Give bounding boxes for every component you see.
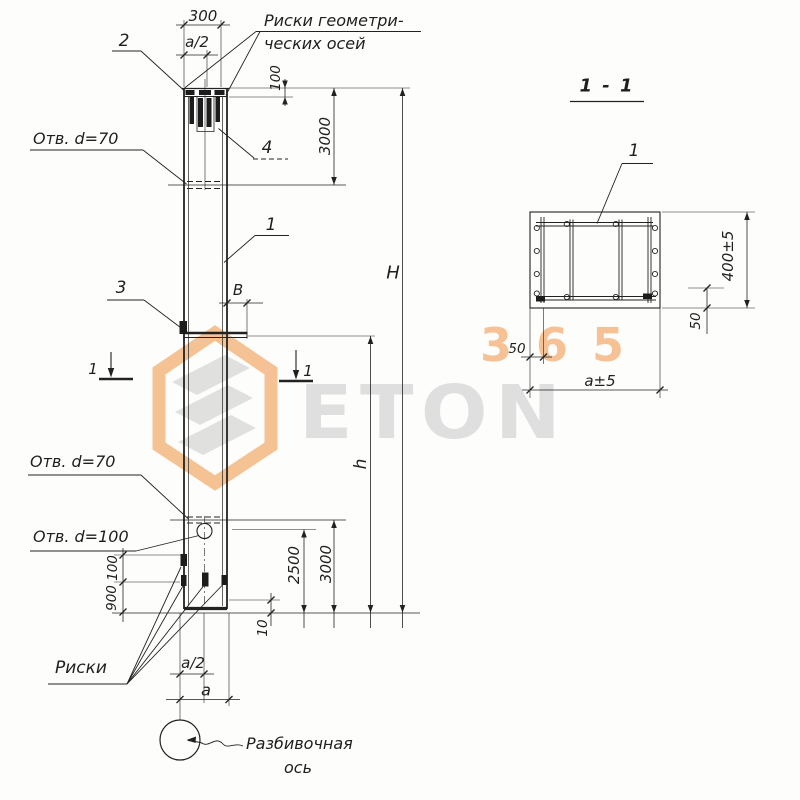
dim-50-right-label: 50 <box>688 312 704 329</box>
dim-B-label: В <box>233 281 243 299</box>
hole-bottom-label: Отв. d=100 <box>33 527 129 546</box>
dim-a2-bottom-label: a/2 <box>181 654 205 672</box>
dim-a-bottom-label: a <box>201 681 211 700</box>
dim-10-label: 10 <box>255 619 271 636</box>
pos-2-label: 2 <box>119 31 130 51</box>
hole-top-label: Отв. d=70 <box>33 129 118 148</box>
pos-1-label: 1 <box>266 215 277 235</box>
dim-300-label: 300 <box>189 7 218 25</box>
axis-marks-note-line2: ческих осей <box>264 34 366 53</box>
watermark-logo-icon <box>159 333 271 483</box>
riski-label: Риски <box>55 658 107 678</box>
dim-50-left-label: 50 <box>508 341 525 357</box>
dim-a5-label: a±5 <box>584 372 615 390</box>
pos-3-label: 3 <box>116 278 127 298</box>
drawing-linework <box>0 0 800 800</box>
dim-h-label: h <box>351 459 371 470</box>
axis-marks-note-line1: Риски геометри- <box>264 11 404 30</box>
dim-a2-top-label: a/2 <box>185 33 209 51</box>
dim-100-left-label: 100 <box>105 555 121 581</box>
section-pos-1-label: 1 <box>629 141 640 161</box>
setting-out-axis-label-line1: Разбивочная <box>246 734 353 753</box>
setting-out-axis-label-line2: ось <box>284 758 312 777</box>
dim-900-left-label: 900 <box>104 585 120 611</box>
dim-400-label: 400±5 <box>719 231 737 282</box>
dim-2500-label: 2500 <box>285 546 303 584</box>
cut-label-left: 1 <box>88 360 98 378</box>
engineering-drawing: 365 ETON <box>0 0 800 800</box>
dim-3000-top-label: 3000 <box>316 117 334 155</box>
pos-4-label: 4 <box>262 138 273 158</box>
section-cut-mark-left <box>99 352 133 379</box>
section-title: 1 - 1 <box>579 76 634 97</box>
dim-3000-bottom-label: 3000 <box>317 545 335 583</box>
cut-label-right: 1 <box>303 362 313 380</box>
hole-mid-label: Отв. d=70 <box>30 452 115 471</box>
dim-100-top-label: 100 <box>268 65 284 91</box>
dim-H-label: H <box>386 263 400 284</box>
